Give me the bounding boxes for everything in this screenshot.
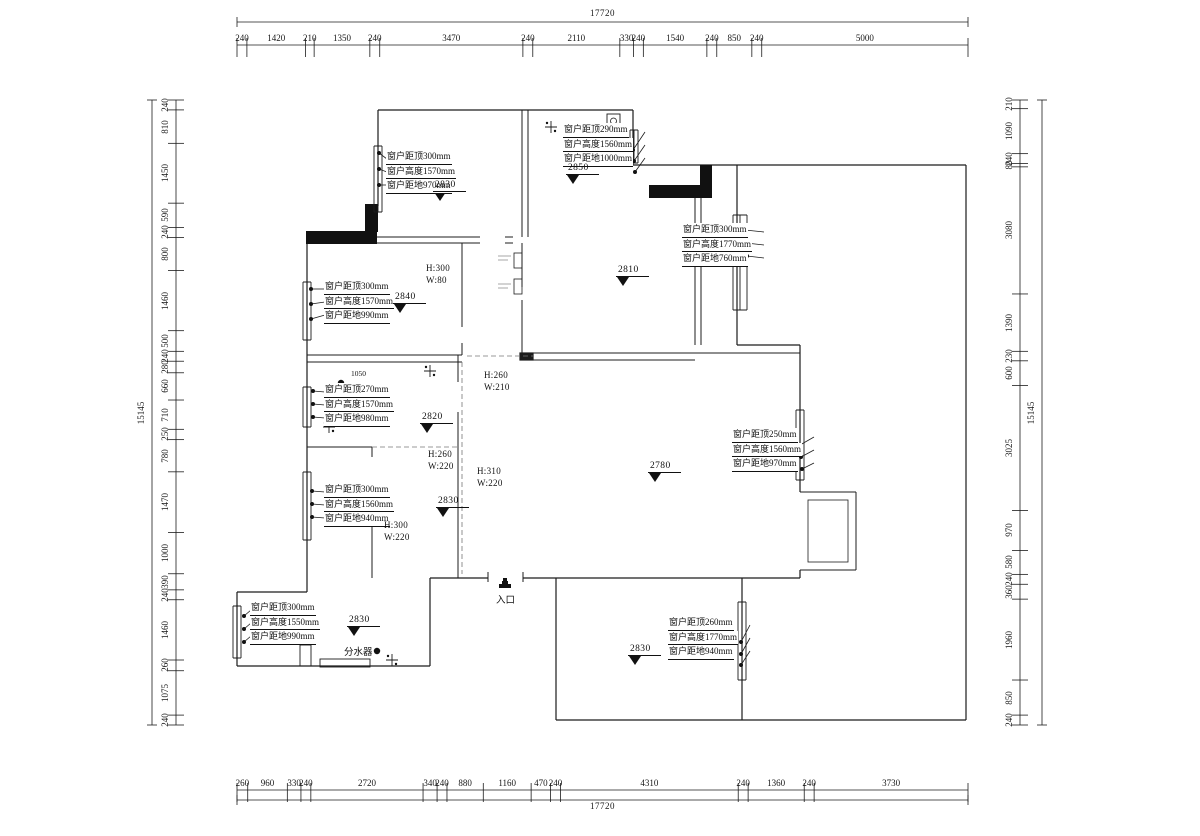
level-mark-triangle [394,304,406,313]
leader-dot [633,170,637,174]
leader-dot [311,389,315,393]
leader-line [800,437,814,445]
leader-dot [377,183,381,187]
leader-dot [632,159,636,163]
leader-line [745,230,764,232]
window [630,130,638,163]
leader-dot [739,652,743,656]
window [233,606,241,658]
level-mark-triangle [649,473,661,482]
top-fixture-box [607,114,620,129]
exterior-walls [237,110,966,720]
cross-marker-dot [546,122,548,124]
leader-dot [242,627,246,631]
shear-wall [700,165,712,185]
leader-line [311,315,325,319]
walls-layer [237,110,966,720]
leader-dot [743,228,747,232]
leader-dot [310,502,314,506]
sensor-icon [568,141,577,146]
floor-plan-drawing [0,0,1200,836]
top-fixture-circle [611,118,617,124]
leader-dot [311,415,315,419]
leader-dot [739,640,743,644]
cross-marker-dot [332,430,334,432]
windows-layer [233,130,804,680]
level-mark-triangle [434,192,446,201]
sensor-icon [373,384,382,389]
downlight-icon [374,648,380,654]
leader-line [634,145,645,161]
leader-dot [377,167,381,171]
cross-marker-dot [324,422,326,424]
leader-dot [377,151,381,155]
cross-marker-dot [554,130,556,132]
level-mark-triangle [421,424,433,433]
pipe-stub [300,645,311,666]
floor-plan-canvas: 1772024014202101350240347024021103302401… [0,0,1200,836]
downlight-icon [338,380,344,386]
cross-marker-dot [433,374,435,376]
window [303,282,311,340]
interior-walls [307,110,856,582]
window [374,146,382,212]
ac-platform-inner [808,500,848,562]
leader-dot [798,443,802,447]
leader-dot [739,663,743,667]
cross-marker-dot [425,366,427,368]
leader-line [747,256,764,258]
niche-tags [498,256,511,288]
downlight-icon [579,126,585,132]
cross-marker-dot [387,655,389,657]
window [303,472,311,540]
shear-walls [306,165,712,244]
cross-marker-dot [395,663,397,665]
leader-dot [309,287,313,291]
shear-wall [649,185,712,198]
leader-dot [800,467,804,471]
leader-dot [242,640,246,644]
level-mark-triangle [348,627,360,636]
level-mark-triangle [617,277,629,286]
leader-dot [309,302,313,306]
leader-line [311,302,325,304]
level-mark-triangle [437,508,449,517]
leader-line [801,450,814,457]
leader-dot [242,614,246,618]
level-mark-triangle [567,175,579,184]
dimension-lines-layer [147,17,1047,805]
leader-dot [745,254,749,258]
leader-dot [744,241,748,245]
leader-dot [311,402,315,406]
leader-dot [309,317,313,321]
level-mark-triangle [629,656,641,665]
wall-niche-2 [514,279,522,294]
leader-dot [799,455,803,459]
leader-dot [310,515,314,519]
wall-stub [520,353,533,360]
leader-dot [310,489,314,493]
entrance-icon [499,578,511,588]
wall-niche-1 [514,253,522,268]
leader-dot [631,148,635,152]
beam-lines [372,356,533,574]
shear-wall [365,204,378,232]
shear-wall [306,231,377,244]
leader-line [746,243,764,245]
window [303,387,311,427]
